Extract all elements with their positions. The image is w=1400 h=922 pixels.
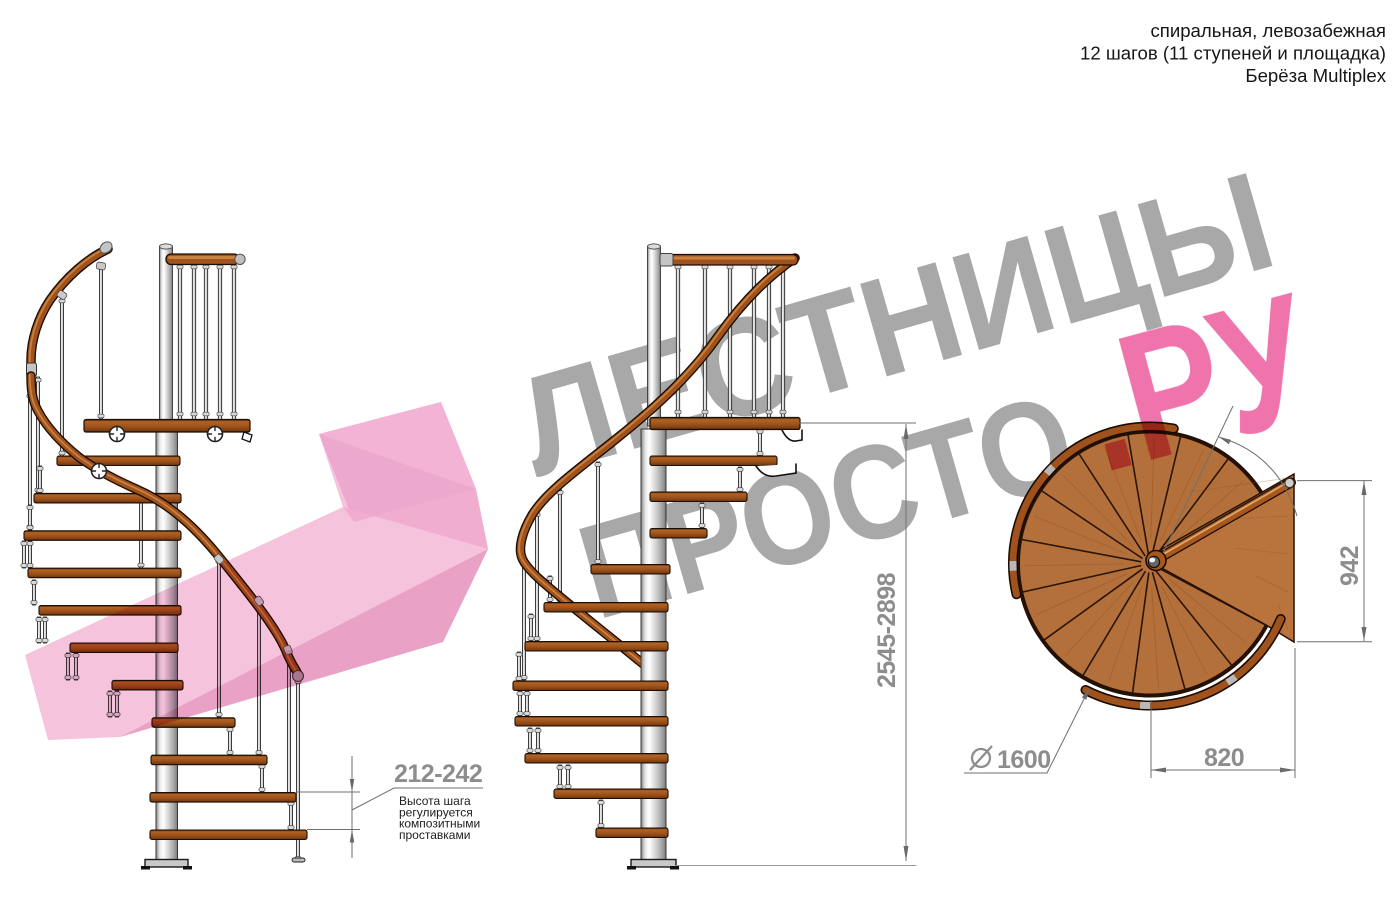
svg-text:2545-2898: 2545-2898 (873, 572, 901, 688)
svg-text:спиральная, левозабежная: спиральная, левозабежная (1150, 20, 1386, 41)
svg-text:1600: 1600 (997, 746, 1051, 774)
svg-text:942: 942 (1336, 546, 1364, 586)
svg-text:12 шагов (11 ступеней и площад: 12 шагов (11 ступеней и площадка) (1080, 43, 1386, 64)
svg-text:Берёза Multiplex: Берёза Multiplex (1245, 65, 1386, 86)
svg-text:проставками: проставками (399, 828, 470, 842)
svg-text:820: 820 (1204, 744, 1244, 772)
svg-text:212-242: 212-242 (394, 760, 482, 788)
